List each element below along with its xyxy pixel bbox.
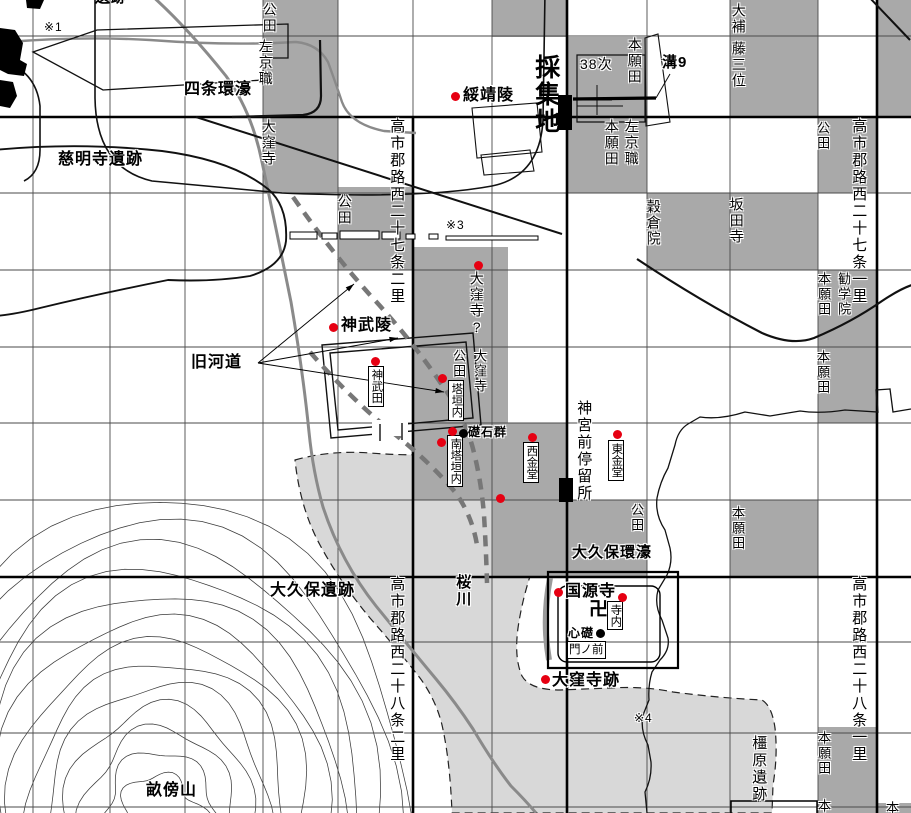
boxed-label-神武田: 神武田 — [368, 366, 384, 407]
map-label-公田: 公田 — [337, 194, 352, 226]
map-label-旧河道: 旧河道 — [191, 355, 242, 372]
map-label-本願田: 本願田 — [604, 119, 619, 167]
site-marker-red — [618, 593, 627, 602]
map-label-畝傍山: 畝傍山 — [146, 783, 197, 800]
site-marker-black — [596, 629, 605, 638]
site-marker-red — [329, 323, 338, 332]
shaded-cell — [492, 500, 647, 577]
map-label-心礎: 心礎 — [568, 627, 594, 640]
site-marker-red — [496, 494, 505, 503]
ancient-road-segment — [290, 232, 317, 239]
map-label-大久保環濠: 大久保環濠 — [572, 545, 652, 561]
map-label-綏靖陵: 綏靖陵 — [463, 88, 514, 105]
map-label-大窪寺?: 大窪寺? — [469, 271, 484, 337]
ditch-9-thick-line — [573, 98, 656, 99]
boxed-label-門ノ前: 門ノ前 — [567, 641, 606, 659]
shaded-cell — [492, 0, 567, 37]
map-label-左京職: 左京職 — [258, 39, 273, 87]
map-label-※4: ※4 — [634, 712, 653, 725]
shaded-cell — [877, 0, 911, 117]
map-label-大窪寺: 大窪寺 — [261, 119, 276, 167]
map-label-桜川: 桜川 — [455, 574, 471, 608]
map-label-坂田寺: 坂田寺 — [729, 197, 744, 245]
site-marker-red — [438, 374, 447, 383]
map-label-本願田: 本願田 — [885, 801, 899, 813]
map-label-大補: 大補 — [731, 3, 746, 35]
ancient-road-segment — [322, 233, 337, 239]
map-label-公田: 公田 — [262, 2, 277, 34]
map-label-採集地: 採集地 — [533, 54, 559, 135]
map-label-本願田: 本願田 — [627, 37, 642, 85]
map-label-本願田: 本願田 — [817, 272, 831, 317]
site-marker-red — [554, 588, 563, 597]
ancient-road-segment — [429, 234, 438, 239]
map-label-本願田: 本願田 — [817, 731, 831, 776]
leader-arrow-line — [258, 284, 354, 363]
map-label-高市郡路西二十八条二里: 高市郡路西二十八条二里 — [389, 576, 405, 763]
map-label-※1: ※1 — [44, 21, 63, 34]
map-label-本願田: 本願田 — [817, 799, 831, 813]
bus-stop-bar — [559, 478, 573, 502]
map-label-神武陵: 神武陵 — [341, 318, 392, 335]
site-marker-red — [371, 357, 380, 366]
boxed-label-西金堂: 西金堂 — [523, 442, 539, 483]
map-label-大久保遺跡: 大久保遺跡 — [270, 583, 355, 600]
map-label-公田: 公田 — [452, 349, 466, 379]
map-label-遺跡: 遺跡 — [95, 0, 127, 6]
ancient-road-segment — [446, 236, 538, 240]
map-label-大窪寺: 大窪寺 — [473, 349, 487, 394]
temple-area-layer — [295, 423, 818, 813]
boxed-label-東金堂: 東金堂 — [608, 440, 624, 481]
boxed-label-塔垣内: 塔垣内 — [448, 380, 464, 421]
map-label-四条環濠: 四条環濠 — [184, 82, 252, 99]
map-label-橿原遺跡: 橿原遺跡 — [751, 735, 767, 803]
site-marker-red — [448, 427, 457, 436]
ancient-road-segment — [340, 231, 379, 239]
map-label-藤三位: 藤三位 — [731, 41, 746, 89]
jori-archaeology-map: ※1遺跡四条環濠慈明寺遺跡綏靖陵38次溝9※3神武陵旧河道礎石群大久保遺跡大久保… — [0, 0, 911, 813]
map-label-高市郡路西二十七条一里: 高市郡路西二十七条一里 — [851, 118, 867, 305]
site-marker-red — [451, 92, 460, 101]
jimyoji-site-outline — [0, 146, 286, 316]
map-label-卍: 卍 — [589, 600, 609, 620]
map-label-高市郡路西二十八条一里: 高市郡路西二十八条一里 — [851, 576, 867, 763]
map-label-勧学院: 勧学院 — [837, 272, 851, 317]
site-marker-red — [474, 261, 483, 270]
map-label-公田: 公田 — [816, 121, 830, 151]
map-label-高市郡路西二十七条二里: 高市郡路西二十七条二里 — [389, 118, 405, 305]
map-label-慈明寺遺跡: 慈明寺遺跡 — [58, 152, 143, 169]
site-marker-red — [613, 430, 622, 439]
contour-line — [0, 569, 358, 813]
map-label-左京職: 左京職 — [624, 119, 639, 167]
boxed-label-寺内: 寺内 — [607, 601, 623, 630]
map-label-38次: 38次 — [580, 57, 613, 72]
map-label-穀倉院: 穀倉院 — [646, 199, 661, 247]
left-arc — [0, 60, 40, 181]
contour-line — [0, 539, 381, 813]
map-label-神宮前停留所: 神宮前停留所 — [576, 400, 592, 502]
map-label-公田: 公田 — [630, 503, 644, 533]
ditch-9-leader — [656, 74, 670, 98]
map-label-溝9: 溝9 — [662, 55, 687, 71]
site-marker-red — [528, 433, 537, 442]
map-label-※3: ※3 — [446, 219, 465, 232]
site-marker-black — [459, 429, 468, 438]
map-label-礎石群: 礎石群 — [468, 426, 507, 439]
boxed-label-南塔垣内: 南塔垣内 — [447, 435, 463, 487]
map-label-本願田: 本願田 — [731, 506, 745, 551]
map-label-本願田: 本願田 — [816, 350, 830, 395]
site-marker-red — [541, 675, 550, 684]
ancient-road-segment — [406, 234, 415, 239]
map-label-大窪寺跡: 大窪寺跡 — [552, 673, 620, 690]
collection-site-bar — [558, 95, 572, 130]
site-marker-red — [437, 438, 446, 447]
